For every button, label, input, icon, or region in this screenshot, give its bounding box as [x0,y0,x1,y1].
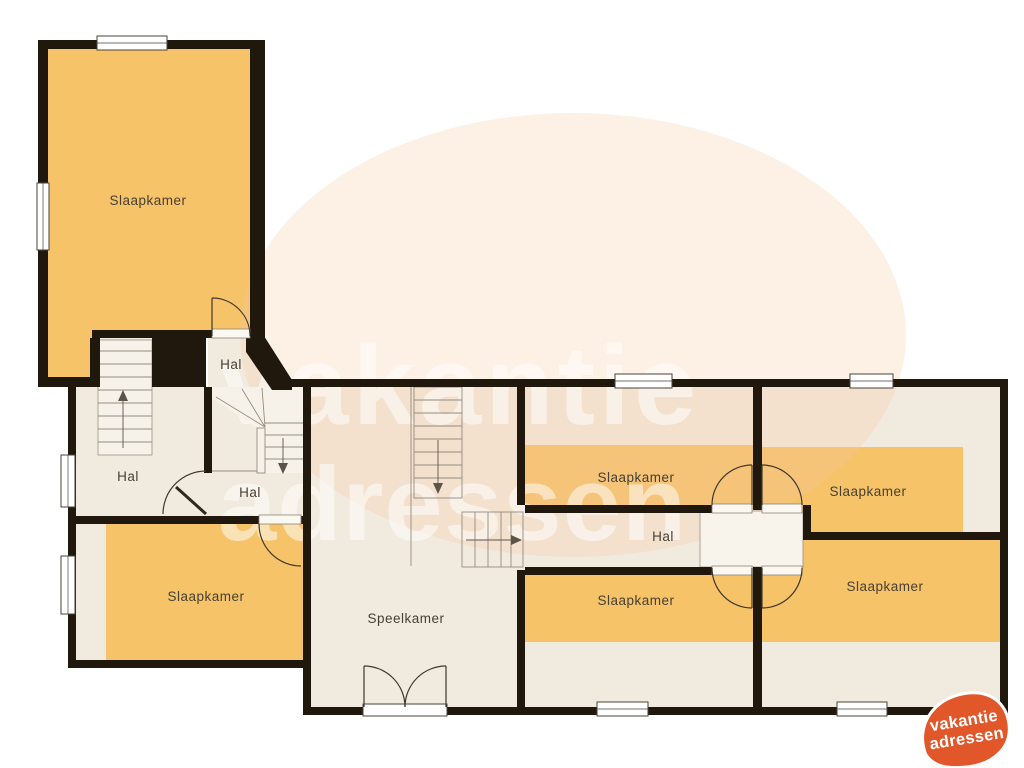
room-label: Hal [652,529,674,544]
room-label: Slaapkamer [109,193,186,208]
stairs-left-straight [98,340,152,455]
room-label: Hal [239,485,261,500]
room-label: Speelkamer [367,611,444,626]
door-slab [712,504,752,513]
room-label: Slaapkamer [597,470,674,485]
room-label: Slaapkamer [597,593,674,608]
door-slab [762,504,802,513]
room-label: Slaapkamer [829,484,906,499]
corridor-vestibule [700,511,803,567]
floorplan-canvas: vakantie adressen [0,0,1024,768]
door-slab [212,329,250,338]
room-bedroom-middle-bottom [525,575,753,642]
room-label: Slaapkamer [846,579,923,594]
door-slab [712,566,752,575]
door-slab [259,515,301,524]
floor-plan-svg: vakantie adressen [0,0,1024,768]
room-label: Slaapkamer [167,589,244,604]
room-label: Hal [117,469,139,484]
door-slab [762,566,802,575]
room-bedroom-top-left [48,48,250,332]
room-label: Hal [220,357,242,372]
room-bedroom-top-left-tab [48,330,92,377]
